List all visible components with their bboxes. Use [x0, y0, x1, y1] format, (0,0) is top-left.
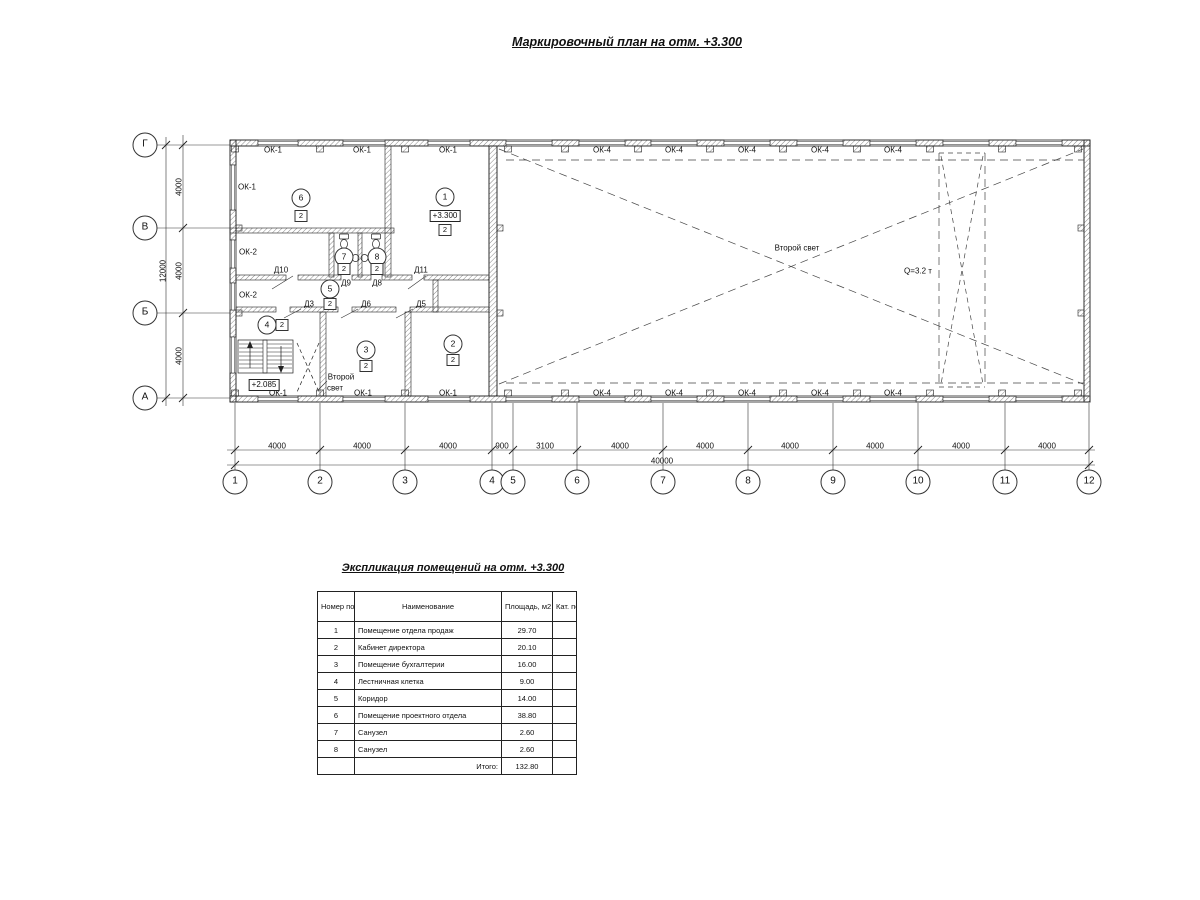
room-number-marker: 6: [292, 189, 311, 208]
room-category-marker: 2: [338, 263, 351, 275]
dimension-value: 4000: [781, 442, 799, 451]
window-mark-label: ОК-4: [738, 389, 756, 398]
schedule-row: 7Санузел2.60: [318, 724, 577, 741]
schedule-row: 1Помещение отдела продаж29.70: [318, 622, 577, 639]
total-area-value: 132.80: [502, 758, 553, 775]
grid-axis-column: 1: [223, 470, 248, 495]
schedule-row: 8Санузел2.60: [318, 741, 577, 758]
grid-axis-column: 11: [993, 470, 1018, 495]
grid-axis-column: 8: [736, 470, 761, 495]
window-mark-label: ОК-4: [593, 389, 611, 398]
room-number-marker: 2: [444, 335, 463, 354]
schedule-cell: Лестничная клетка: [355, 673, 502, 690]
schedule-row: 6Помещение проектного отдела38.80: [318, 707, 577, 724]
elevation-label: +2.085: [249, 379, 280, 391]
window-mark-label: ОК-1: [238, 183, 256, 192]
schedule-cell: [553, 741, 577, 758]
header-room-name: Наименование: [355, 592, 502, 622]
window-mark-label: ОК-4: [593, 146, 611, 155]
schedule-cell: 29.70: [502, 622, 553, 639]
schedule-cell: Санузел: [355, 724, 502, 741]
door-mark-label: Д5: [416, 300, 426, 309]
door-mark-label: Д10: [274, 266, 288, 275]
room-number-marker: 3: [357, 341, 376, 360]
schedule-row: 3Помещение бухгалтерии16.00: [318, 656, 577, 673]
room-number-marker: 5: [321, 280, 340, 299]
window-mark-label: ОК-1: [439, 389, 457, 398]
dimension-value: 4000: [175, 347, 184, 365]
schedule-cell: [553, 707, 577, 724]
dimension-value: 900: [495, 442, 508, 451]
grid-axis-row: Б: [133, 301, 158, 326]
door-mark-label: Д11: [414, 266, 428, 275]
room-category-marker: 2: [295, 210, 308, 222]
schedule-cell: 4: [318, 673, 355, 690]
schedule-cell: 6: [318, 707, 355, 724]
window-mark-label: ОК-4: [811, 146, 829, 155]
schedule-cell: 38.80: [502, 707, 553, 724]
schedule-cell: Кабинет директора: [355, 639, 502, 656]
schedule-cell: Помещение проектного отдела: [355, 707, 502, 724]
header-room-number: Номер помещ.: [318, 592, 355, 622]
door-mark-label: Д8: [372, 279, 382, 288]
window-mark-label: ОК-1: [439, 146, 457, 155]
window-mark-label: ОК-4: [665, 389, 683, 398]
schedule-cell: 20.10: [502, 639, 553, 656]
schedule-cell: Коридор: [355, 690, 502, 707]
grid-axis-column: 10: [906, 470, 931, 495]
dimension-value: 4000: [866, 442, 884, 451]
dimension-value: 4000: [175, 262, 184, 280]
elevation-label: +3.300: [430, 210, 461, 222]
second-light-stair-label-line2: свет: [327, 384, 343, 393]
dimension-value: 4000: [175, 178, 184, 196]
grid-axis-column: 3: [393, 470, 418, 495]
grid-axis-row: А: [133, 386, 158, 411]
window-mark-label: ОК-4: [884, 389, 902, 398]
room-category-marker: 2: [439, 224, 452, 236]
room-category-marker: 2: [371, 263, 384, 275]
dimension-total-value: 12000: [159, 260, 168, 282]
schedule-cell: Санузел: [355, 741, 502, 758]
room-category-marker: 2: [360, 360, 373, 372]
dimension-value: 3100: [536, 442, 554, 451]
header-room-category: Кат. пом.: [553, 592, 577, 622]
dimension-value: 4000: [611, 442, 629, 451]
schedule-cell: 9.00: [502, 673, 553, 690]
schedule-cell: [553, 724, 577, 741]
dimension-value: 4000: [353, 442, 371, 451]
dimension-total-value: 40000: [651, 457, 673, 466]
schedule-cell: 14.00: [502, 690, 553, 707]
table-title: Экспликация помещений на отм. +3.300: [342, 562, 564, 574]
schedule-cell: [553, 690, 577, 707]
plan-labels-layer: ОК-1ОК-1ОК-1ОК-1ОК-2ОК-2ОК-1ОК-1ОК-1ОК-4…: [0, 0, 1200, 900]
room-number-marker: 4: [258, 316, 277, 335]
total-label: Итого:: [355, 758, 502, 775]
schedule-cell: 16.00: [502, 656, 553, 673]
dimension-value: 4000: [268, 442, 286, 451]
schedule-cell: Помещение бухгалтерии: [355, 656, 502, 673]
schedule-cell: 3: [318, 656, 355, 673]
window-mark-label: ОК-4: [665, 146, 683, 155]
dimension-value: 4000: [696, 442, 714, 451]
grid-axis-column: 9: [821, 470, 846, 495]
window-mark-label: ОК-4: [738, 146, 756, 155]
schedule-cell: 1: [318, 622, 355, 639]
header-room-area: Площадь, м2: [502, 592, 553, 622]
schedule-cell: 5: [318, 690, 355, 707]
schedule-cell: [553, 656, 577, 673]
grid-axis-row: В: [133, 216, 158, 241]
schedule-total-row: Итого: 132.80: [318, 758, 577, 775]
crane-capacity-label: Q=3.2 т: [904, 267, 932, 276]
grid-axis-column: 2: [308, 470, 333, 495]
dimension-value: 4000: [952, 442, 970, 451]
dimension-value: 4000: [439, 442, 457, 451]
door-mark-label: Д3: [304, 300, 314, 309]
schedule-header-row: Номер помещ. Наименование Площадь, м2 Ка…: [318, 592, 577, 622]
window-mark-label: ОК-1: [353, 146, 371, 155]
schedule-cell: [553, 622, 577, 639]
schedule-cell: [553, 639, 577, 656]
schedule-cell: 7: [318, 724, 355, 741]
drawing-sheet: Маркировочный план на отм. +3.300: [0, 0, 1200, 900]
schedule-cell: [553, 673, 577, 690]
grid-axis-row: Г: [133, 133, 158, 158]
grid-axis-column: 12: [1077, 470, 1102, 495]
grid-axis-column: 6: [565, 470, 590, 495]
schedule-cell: 2: [318, 639, 355, 656]
window-mark-label: ОК-2: [239, 248, 257, 257]
schedule-row: 5Коридор14.00: [318, 690, 577, 707]
grid-axis-column: 7: [651, 470, 676, 495]
schedule-cell: 2.60: [502, 741, 553, 758]
schedule-row: 2Кабинет директора20.10: [318, 639, 577, 656]
window-mark-label: ОК-1: [264, 146, 282, 155]
room-category-marker: 2: [324, 298, 337, 310]
grid-axis-column: 5: [501, 470, 526, 495]
window-mark-label: ОК-4: [811, 389, 829, 398]
room-category-marker: 2: [447, 354, 460, 366]
schedule-cell: 2.60: [502, 724, 553, 741]
door-mark-label: Д6: [361, 300, 371, 309]
second-light-stair-label-line1: Второй: [328, 373, 354, 382]
second-light-label: Второй свет: [775, 244, 820, 253]
room-schedule-table: Номер помещ. Наименование Площадь, м2 Ка…: [317, 591, 577, 775]
window-mark-label: ОК-1: [354, 389, 372, 398]
dimension-value: 4000: [1038, 442, 1056, 451]
schedule-row: 4Лестничная клетка9.00: [318, 673, 577, 690]
schedule-cell: 8: [318, 741, 355, 758]
room-category-marker: 2: [276, 319, 289, 331]
door-mark-label: Д9: [341, 279, 351, 288]
window-mark-label: ОК-4: [884, 146, 902, 155]
schedule-cell: Помещение отдела продаж: [355, 622, 502, 639]
window-mark-label: ОК-2: [239, 291, 257, 300]
room-number-marker: 1: [436, 188, 455, 207]
